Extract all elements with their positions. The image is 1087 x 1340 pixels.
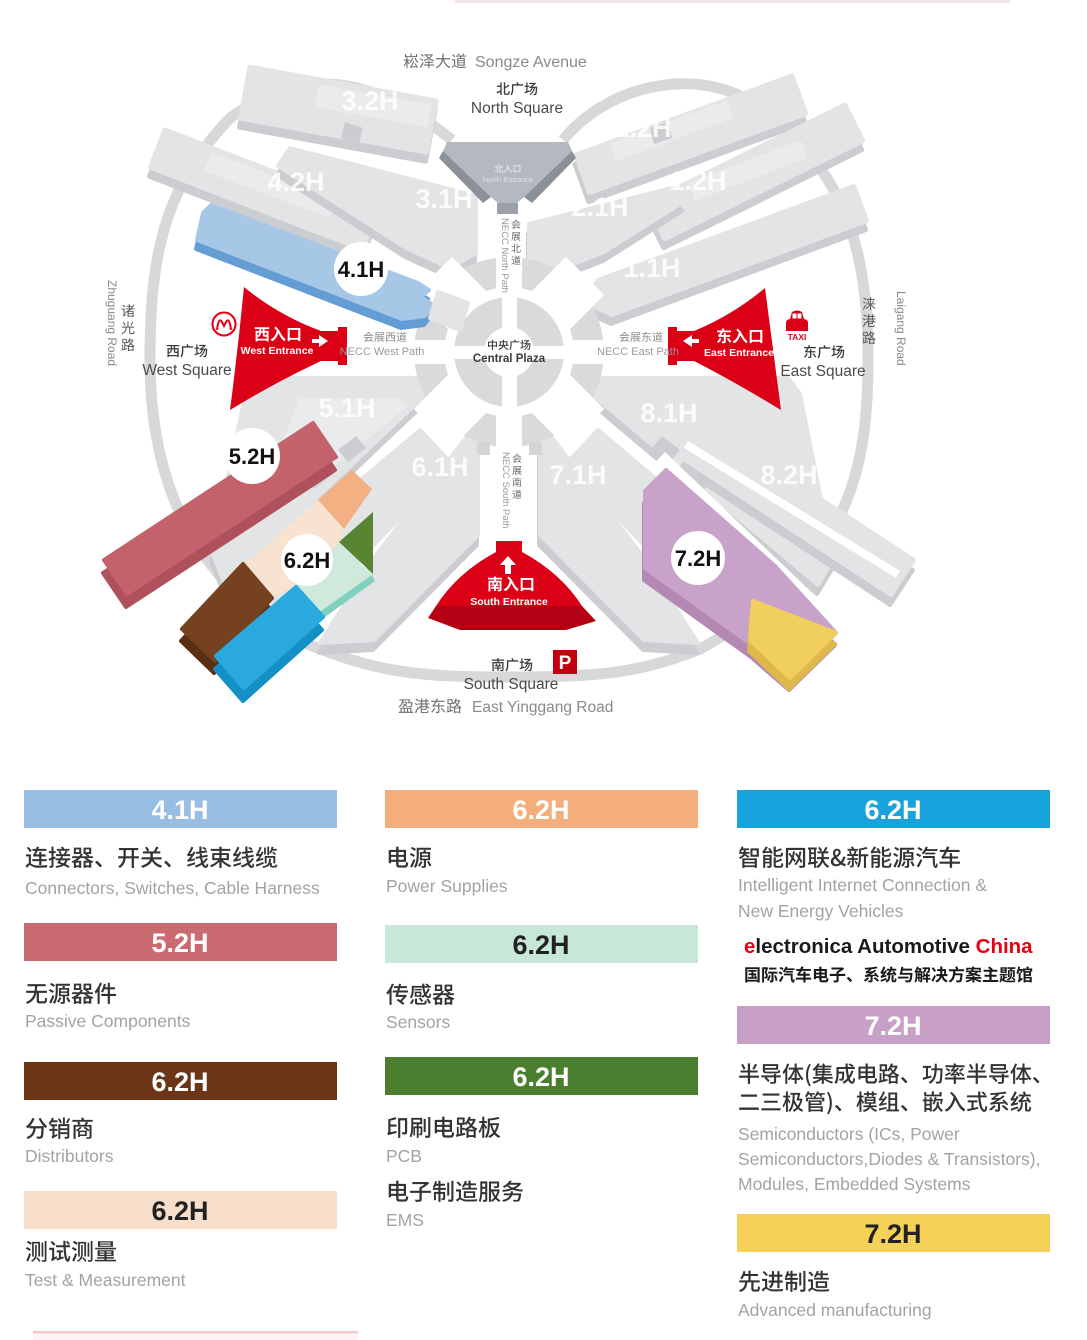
svg-text:NECC West Path: NECC West Path xyxy=(340,346,425,358)
svg-text:EMS: EMS xyxy=(386,1210,424,1230)
svg-text:East Square: East Square xyxy=(780,363,865,380)
svg-text:PCB: PCB xyxy=(386,1146,422,1166)
svg-text:6.2H: 6.2H xyxy=(512,1062,569,1092)
svg-text:6.2H: 6.2H xyxy=(284,548,330,573)
svg-text:6.2H: 6.2H xyxy=(864,795,921,825)
svg-text:NECC South Path: NECC South Path xyxy=(500,452,511,529)
svg-text:5.2H: 5.2H xyxy=(229,444,275,469)
svg-text:Distributors: Distributors xyxy=(25,1146,114,1166)
svg-text:electronica Automotive China: electronica Automotive China xyxy=(744,935,1033,958)
svg-text:7.2H: 7.2H xyxy=(864,1011,921,1041)
svg-text:Modules, Embedded Systems: Modules, Embedded Systems xyxy=(738,1174,971,1194)
svg-text:5.1H: 5.1H xyxy=(318,393,375,423)
svg-text:Connectors, Switches, Cable Ha: Connectors, Switches, Cable Harness xyxy=(25,878,320,898)
svg-text:4.2H: 4.2H xyxy=(267,167,324,197)
svg-text:2.2H: 2.2H xyxy=(614,113,671,143)
svg-text:Power Supplies: Power Supplies xyxy=(386,876,508,896)
svg-text:8.1H: 8.1H xyxy=(640,398,697,428)
svg-text:5.2H: 5.2H xyxy=(151,928,208,958)
svg-text:Passive Components: Passive Components xyxy=(25,1011,191,1031)
svg-text:North Square: North Square xyxy=(471,100,563,117)
svg-text:6.2H: 6.2H xyxy=(151,1196,208,1226)
svg-text:Laigang Road: Laigang Road xyxy=(894,291,908,366)
svg-text:P: P xyxy=(559,653,572,674)
svg-text:7.2H: 7.2H xyxy=(675,546,721,571)
svg-text:1.1H: 1.1H xyxy=(623,253,680,283)
svg-text:Semiconductors (ICs, Power: Semiconductors (ICs, Power xyxy=(738,1124,960,1144)
svg-text:North Entrance: North Entrance xyxy=(483,175,533,184)
svg-text:6.2H: 6.2H xyxy=(512,930,569,960)
svg-text:TAXI: TAXI xyxy=(788,332,807,342)
svg-text:4.1H: 4.1H xyxy=(151,795,208,825)
svg-text:4.1H: 4.1H xyxy=(338,257,384,282)
svg-text:3.2H: 3.2H xyxy=(341,86,398,116)
svg-text:3.1H: 3.1H xyxy=(415,184,472,214)
svg-text:8.2H: 8.2H xyxy=(760,460,817,490)
svg-text:6.2H: 6.2H xyxy=(512,795,569,825)
svg-text:New Energy Vehicles: New Energy Vehicles xyxy=(738,901,904,921)
svg-text:East Entrance: East Entrance xyxy=(704,347,774,359)
svg-text:1.2H: 1.2H xyxy=(669,166,726,196)
svg-text:7.2H: 7.2H xyxy=(864,1219,921,1249)
svg-text:Intelligent Internet Connectio: Intelligent Internet Connection & xyxy=(738,875,987,895)
svg-text:Zhuguang Road: Zhuguang Road xyxy=(105,280,119,366)
svg-text:Central Plaza: Central Plaza xyxy=(473,353,546,365)
svg-text:East Yinggang Road: East Yinggang Road xyxy=(472,699,613,716)
svg-text:NECC North Path: NECC North Path xyxy=(499,218,510,293)
svg-text:Sensors: Sensors xyxy=(386,1012,450,1032)
svg-text:Semiconductors,Diodes & Transi: Semiconductors,Diodes & Transistors), xyxy=(738,1149,1040,1169)
svg-text:Test & Measurement: Test & Measurement xyxy=(25,1270,186,1290)
svg-text:Songze Avenue: Songze Avenue xyxy=(475,54,587,71)
svg-text:West Square: West Square xyxy=(142,362,231,379)
svg-text:2.1H: 2.1H xyxy=(571,192,628,222)
svg-text:South Square: South Square xyxy=(464,676,559,693)
svg-text:7.1H: 7.1H xyxy=(549,460,606,490)
svg-text:South Entrance: South Entrance xyxy=(470,596,548,608)
svg-text:West Entrance: West Entrance xyxy=(241,345,314,357)
svg-text:NECC East Path: NECC East Path xyxy=(597,346,679,358)
svg-text:6.1H: 6.1H xyxy=(411,452,468,482)
svg-text:6.2H: 6.2H xyxy=(151,1067,208,1097)
svg-text:Advanced manufacturing: Advanced manufacturing xyxy=(738,1300,932,1320)
